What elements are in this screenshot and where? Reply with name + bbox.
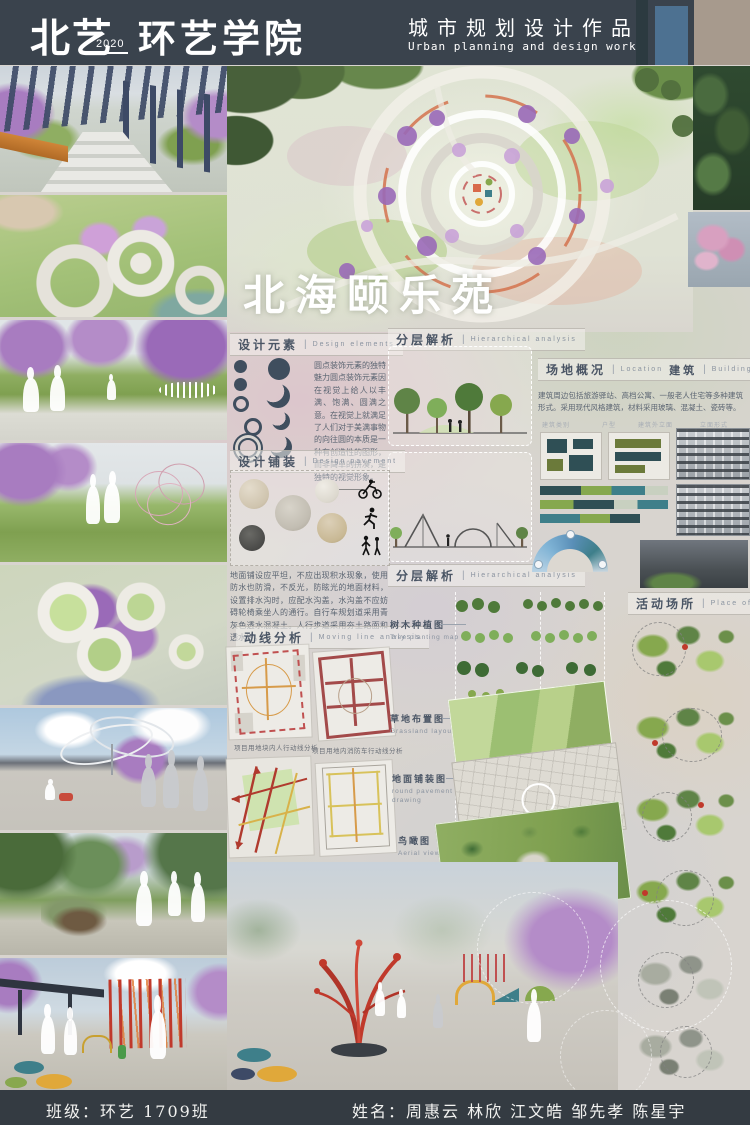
person-silhouette — [23, 378, 39, 412]
plan-label-pavement: 地面铺装图 round pavement drawing — [392, 772, 462, 805]
person-silhouette — [86, 486, 100, 524]
render-green-path — [0, 833, 227, 955]
elevation-strip-trees — [388, 346, 532, 446]
render-canopy-plaza — [0, 708, 227, 830]
photo-evergreen-trees — [693, 66, 750, 210]
class-info: 班级：环艺 1709班 — [46, 1098, 210, 1122]
inner-vehicle-flow-diagram — [316, 760, 397, 856]
elevation-trees-graphic — [389, 347, 531, 445]
analysis-arc-diagram — [532, 534, 608, 572]
pebble-teal — [14, 1061, 44, 1074]
wire-sculpture — [132, 464, 209, 526]
activity-plan-diagram — [612, 778, 748, 854]
toy-car — [59, 793, 73, 801]
shrub-sculpture — [41, 896, 118, 937]
building-sub-label: 建筑外立面 — [638, 420, 673, 429]
college-name: 环艺学院 — [138, 8, 306, 63]
section-label-design-elements: 设计元素 | Design elements — [230, 333, 403, 356]
plan-label-grassland: 草地布置图 Grassland layout — [390, 712, 455, 736]
child-silhouette — [45, 784, 55, 800]
pebble-olive — [5, 1077, 27, 1088]
stone-sample — [239, 525, 265, 551]
fitness-kid — [118, 1045, 126, 1059]
render-lawn-sculpture — [0, 443, 227, 562]
section-label-activity: 活动场所 | Place of activity — [628, 592, 750, 615]
red-tree-sculpture — [297, 917, 427, 1057]
person-silhouette — [141, 767, 156, 807]
building-render-thumbnail — [676, 484, 750, 536]
project-title: 北海颐乐苑 — [243, 262, 503, 323]
render-pergola-walkway — [0, 66, 227, 192]
pergola-dark — [0, 979, 104, 998]
fitness-equipment — [82, 1035, 112, 1053]
person-silhouette — [104, 483, 120, 523]
building-sub-label: 户型 — [602, 420, 616, 429]
header-stripe-blue — [655, 6, 688, 65]
person-silhouette — [397, 996, 406, 1018]
render-red-poles — [0, 958, 227, 1090]
footer-bar: 班级：环艺 1709班 姓名：周惠云 林欣 江文皓 邹先孝 陈星宇 — [0, 1090, 750, 1125]
stone-sample — [239, 479, 269, 509]
cyclist-icon — [357, 479, 383, 499]
elevation-playground-graphic — [389, 453, 531, 561]
school-logo-text: 北艺 — [30, 6, 114, 64]
floorplan-thumbnail — [608, 432, 670, 480]
decor-dashed-circle — [477, 892, 589, 1004]
render-aerial-plaza — [0, 195, 227, 317]
red-pole-cluster — [108, 978, 186, 1048]
moving-line-caption: 项目用地内消防车行动线分析 — [312, 745, 403, 755]
person-silhouette — [168, 882, 181, 916]
person-silhouette — [193, 769, 208, 811]
design-elements-text: 圆点装饰元素的独特魅力圆点装饰元素因在视觉上给人以丰满、饱满、圆满之意。在视觉上… — [314, 360, 386, 454]
authors-info: 姓名：周惠云 林欣 江文皓 邹先孝 陈星宇 — [352, 1098, 686, 1122]
person-silhouette — [150, 1011, 166, 1059]
decor-dashed-circle — [560, 1010, 652, 1102]
stone-sample — [275, 495, 311, 531]
bench-orange — [0, 132, 68, 163]
stone-sample — [315, 479, 339, 503]
activity-plan-diagram — [612, 696, 748, 772]
dot-motif — [268, 358, 290, 380]
person-silhouette — [50, 376, 65, 411]
runner-icon — [361, 507, 381, 531]
plan-label-aerial-view: 鸟瞰图 Aerial view — [398, 834, 440, 858]
pebble-teal — [237, 1048, 271, 1062]
render-park-silhouettes — [0, 320, 227, 440]
fire-route-diagram — [313, 647, 395, 740]
work-title-en: Urban planning and design works — [408, 40, 644, 53]
person-silhouette — [191, 884, 205, 922]
pebble-yellow — [36, 1074, 72, 1089]
person-silhouette — [433, 1002, 443, 1028]
header-stripe-tan — [694, 0, 750, 65]
ring-motif — [233, 396, 249, 412]
unit-bars-diagram — [540, 486, 668, 524]
person-silhouette — [107, 380, 116, 400]
outer-vehicle-flow-diagram — [226, 757, 313, 858]
render-aerial-circles — [0, 565, 227, 705]
elevation-strip-playground — [388, 452, 532, 562]
white-fence — [159, 382, 218, 398]
moving-line-caption: 项目用地块内人行动线分析 — [234, 742, 318, 752]
crescent-motif — [266, 384, 290, 408]
crescent-motif — [272, 412, 290, 430]
activity-plan-diagram — [612, 614, 748, 690]
header-bar: 北艺 2020 环艺学院 城市规划设计作品 Urban planning and… — [0, 0, 750, 65]
person-silhouette — [41, 1016, 55, 1054]
design-poster: 北艺 2020 环艺学院 城市规划设计作品 Urban planning and… — [0, 0, 750, 1125]
stone-sample — [317, 513, 347, 543]
work-title-cn: 城市规划设计作品 — [408, 12, 640, 41]
header-stripe-dark — [636, 0, 648, 65]
canopy-structure — [59, 718, 173, 769]
floorplan-thumbnail — [540, 432, 602, 480]
street-view-photo — [640, 540, 748, 588]
person-silhouette — [527, 1002, 541, 1042]
pavement-materials-box — [230, 470, 390, 566]
building-render-thumbnail — [676, 428, 750, 480]
pebble-navy — [231, 1068, 255, 1080]
person-silhouette — [64, 1019, 77, 1055]
plan-label-tree-planting: 树木种植图 Tree planting map — [390, 618, 459, 642]
pedestrian-flow-diagram — [226, 645, 311, 740]
person-silhouette — [375, 990, 385, 1016]
person-silhouette — [136, 884, 152, 926]
photo-pink-blossom-tree — [688, 212, 750, 287]
section-label-site-overview: 场地概况 | Location 建筑 | Building — [538, 358, 750, 381]
person-silhouette — [163, 764, 179, 808]
pebble-yellow — [257, 1066, 297, 1082]
building-sub-label: 建筑类别 — [542, 420, 570, 429]
site-overview-text: 建筑周边包括旅游驿站、高档公寓、一般老人住宅等多种建筑形式。采用现代风格建筑，材… — [538, 390, 743, 413]
circle-motifs — [232, 358, 308, 450]
school-year: 2020 — [94, 38, 128, 54]
dot-motif — [234, 360, 247, 373]
ring-motif — [244, 418, 262, 436]
walking-figures-icon — [359, 535, 383, 557]
dot-motif — [234, 378, 247, 391]
pergola-post — [18, 990, 22, 1035]
